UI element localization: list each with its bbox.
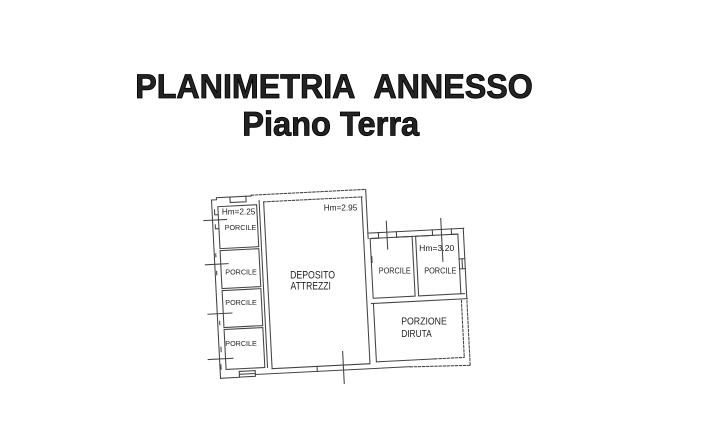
svg-text:PORCILE: PORCILE [225, 339, 256, 348]
svg-text:PORCILE: PORCILE [379, 266, 412, 275]
svg-text:PORCILE: PORCILE [225, 298, 256, 307]
svg-text:Hm=3.20: Hm=3.20 [419, 243, 454, 253]
svg-text:PORCILE: PORCILE [225, 268, 256, 277]
svg-text:DIRUTA: DIRUTA [401, 329, 432, 340]
svg-text:Piano Terra: Piano Terra [242, 106, 420, 144]
svg-text:Hm=2.95: Hm=2.95 [324, 202, 358, 212]
svg-text:Hm=2.25: Hm=2.25 [222, 207, 256, 216]
svg-text:PLANIMETRIA ANNESSO: PLANIMETRIA ANNESSO [135, 68, 533, 106]
svg-text:PORCILE: PORCILE [424, 266, 457, 275]
svg-text:PORCILE: PORCILE [225, 223, 257, 232]
svg-text:PORZIONE: PORZIONE [401, 317, 447, 328]
svg-text:ATTREZZI: ATTREZZI [291, 280, 331, 292]
